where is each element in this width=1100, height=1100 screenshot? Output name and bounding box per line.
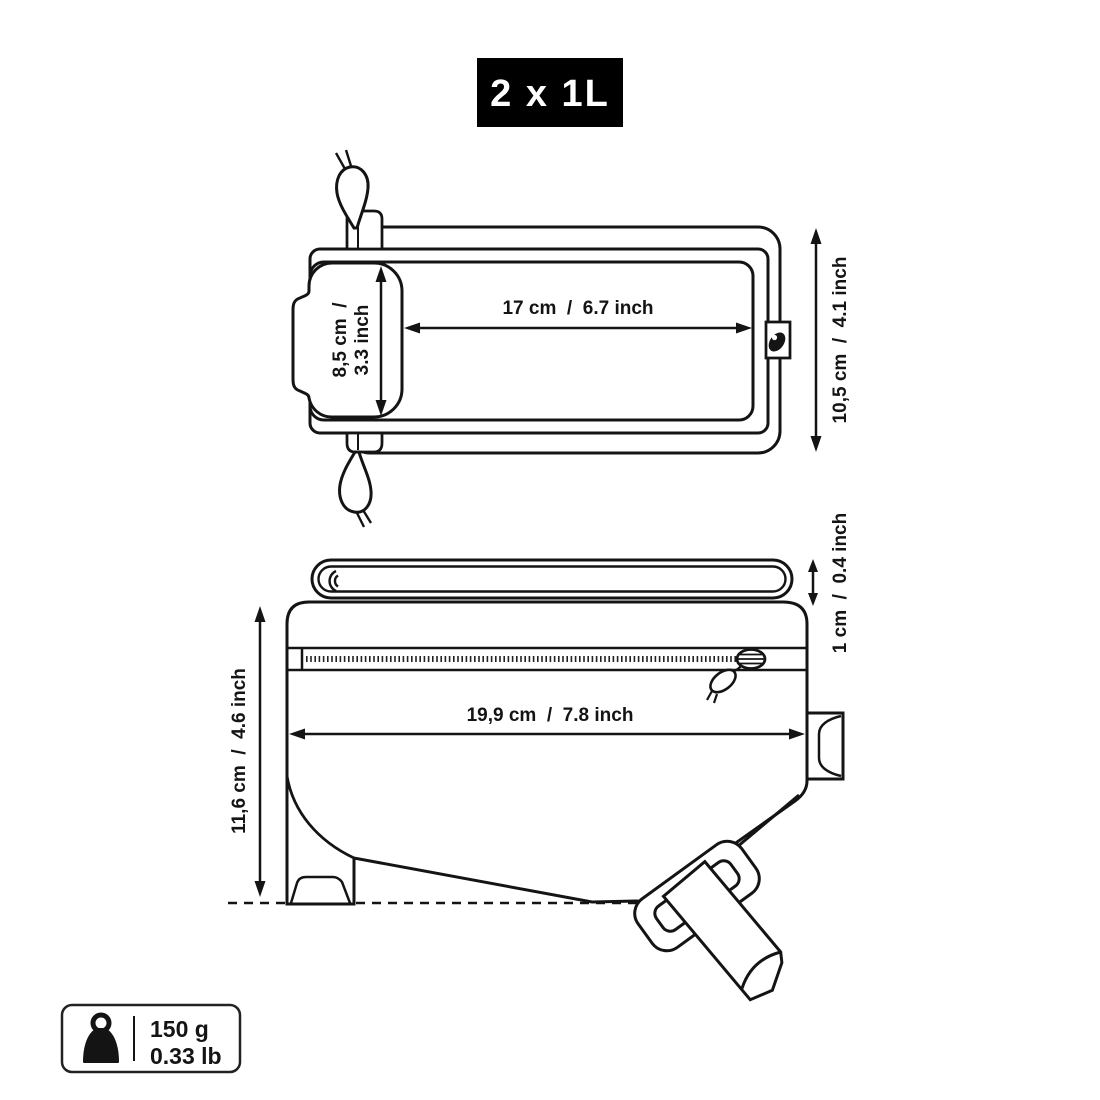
arrow-head-down-icon [811, 436, 822, 452]
top-view: 17 cm / 6.7 inch 8,5 cm / 3.3 inch 10,5 … [293, 150, 851, 527]
top-height-label: 10,5 cm / 4.1 inch [830, 257, 851, 424]
top-width-label: 17 cm / 6.7 inch [502, 298, 653, 319]
flap-height-dimension: 1 cm / 0.4 inch [808, 513, 851, 653]
zipper-pull-highlight [772, 335, 777, 340]
side-height-label: 11,6 cm / 4.6 inch [229, 668, 250, 834]
pocket-height-label-line1: 8,5 cm / [330, 302, 351, 378]
bottom-webbing-loop [347, 433, 382, 452]
weight-imperial-label: 0.33 lb [150, 1043, 222, 1069]
side-length-label: 19,9 cm / 7.8 inch [467, 705, 634, 726]
top-flap-inner-line [319, 567, 786, 592]
arrow-head-down-icon [808, 593, 818, 606]
capacity-badge: 2 x 1L [477, 58, 623, 127]
top-height-dimension: 10,5 cm / 4.1 inch [811, 228, 852, 452]
weight-badge: 150 g 0.33 lb [62, 1005, 240, 1072]
arrow-head-up-icon [811, 228, 822, 244]
pocket-height-label-line2: 3.3 inch [352, 305, 373, 376]
arrow-head-up-icon [255, 606, 266, 622]
side-height-dimension: 11,6 cm / 4.6 inch [229, 606, 266, 897]
arrow-head-down-icon [255, 881, 266, 897]
flap-height-label: 1 cm / 0.4 inch [830, 513, 851, 653]
arrow-head-up-icon [808, 559, 818, 572]
side-view: 19,9 cm / 7.8 inch 11,6 cm / 4.6 inch 1 … [228, 513, 851, 1005]
product-dimension-diagram: 2 x 1L 17 cm / 6.7 inch [0, 0, 1100, 1100]
drawcord-toggle-bottom [340, 452, 372, 512]
diagram-canvas: 2 x 1L 17 cm / 6.7 inch [0, 0, 1100, 1100]
weight-metric-label: 150 g [150, 1016, 209, 1042]
capacity-badge-label: 2 x 1L [490, 73, 610, 115]
